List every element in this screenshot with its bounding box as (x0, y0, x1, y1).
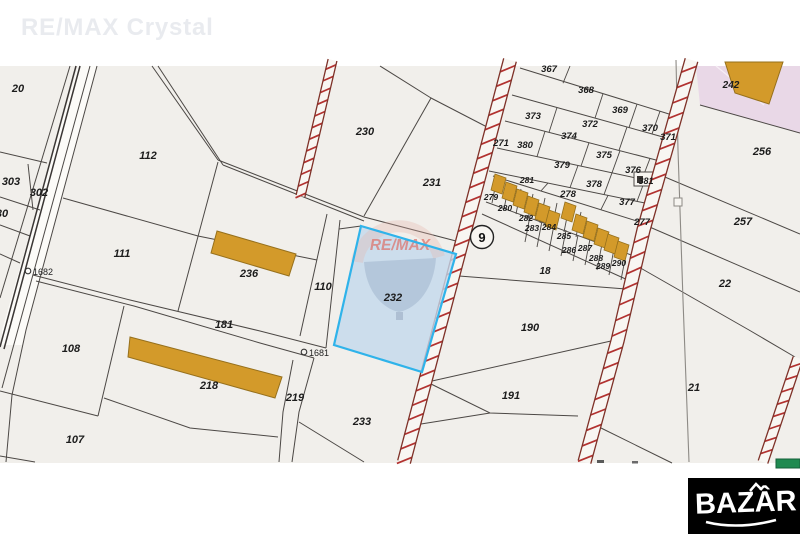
svg-text:219: 219 (285, 392, 305, 404)
svg-text:257: 257 (733, 216, 753, 228)
svg-text:233: 233 (352, 416, 371, 428)
svg-text:18: 18 (539, 266, 551, 277)
svg-text:283: 283 (524, 223, 539, 233)
svg-text:1681: 1681 (309, 348, 329, 358)
svg-text:242: 242 (722, 80, 740, 91)
svg-text:236: 236 (239, 268, 259, 280)
svg-text:286: 286 (561, 245, 576, 255)
svg-text:367: 367 (541, 64, 558, 75)
svg-text:111: 111 (114, 248, 131, 260)
svg-text:282: 282 (518, 213, 533, 223)
svg-text:112: 112 (139, 150, 157, 162)
svg-text:281: 281 (519, 175, 534, 185)
svg-text:20: 20 (11, 83, 25, 95)
svg-text:285: 285 (556, 231, 571, 241)
svg-text:107: 107 (66, 434, 85, 446)
svg-text:191: 191 (502, 390, 520, 402)
svg-text:278: 278 (559, 189, 577, 200)
svg-text:110: 110 (314, 281, 332, 293)
svg-text:372: 372 (582, 119, 599, 130)
svg-text:RE/MAX: RE/MAX (370, 237, 432, 254)
svg-text:368: 368 (578, 85, 595, 96)
svg-text:289: 289 (595, 261, 610, 271)
svg-text:1682: 1682 (33, 267, 53, 277)
svg-text:303: 303 (2, 176, 20, 188)
svg-text:279: 279 (483, 192, 498, 202)
svg-text:230: 230 (355, 126, 375, 138)
svg-text:379: 379 (554, 160, 571, 171)
svg-text:271: 271 (492, 138, 509, 149)
svg-text:377: 377 (619, 197, 636, 208)
svg-text:181: 181 (215, 319, 233, 331)
svg-text:232: 232 (383, 292, 402, 304)
svg-text:284: 284 (541, 222, 556, 232)
svg-text:21: 21 (687, 382, 700, 394)
svg-text:370: 370 (642, 123, 659, 134)
svg-text:374: 374 (561, 131, 578, 142)
svg-text:190: 190 (521, 322, 540, 334)
svg-text:380: 380 (517, 140, 534, 151)
svg-text:9: 9 (478, 230, 485, 245)
svg-text:287: 287 (577, 243, 593, 253)
svg-text:290: 290 (611, 258, 626, 268)
svg-text:108: 108 (62, 343, 81, 355)
svg-text:277: 277 (633, 217, 651, 228)
svg-text:373: 373 (525, 111, 542, 122)
svg-text:22: 22 (718, 278, 731, 290)
svg-text:280: 280 (497, 203, 512, 213)
svg-text:378: 378 (586, 179, 603, 190)
svg-text:375: 375 (596, 150, 613, 161)
svg-text:30: 30 (0, 208, 9, 220)
svg-text:218: 218 (199, 380, 219, 392)
svg-text:256: 256 (752, 146, 772, 158)
svg-text:371: 371 (660, 132, 676, 143)
svg-text:376: 376 (625, 165, 642, 176)
svg-text:302: 302 (30, 187, 48, 199)
svg-text:369: 369 (612, 105, 629, 116)
svg-text:381: 381 (638, 176, 653, 186)
svg-text:231: 231 (422, 177, 441, 189)
